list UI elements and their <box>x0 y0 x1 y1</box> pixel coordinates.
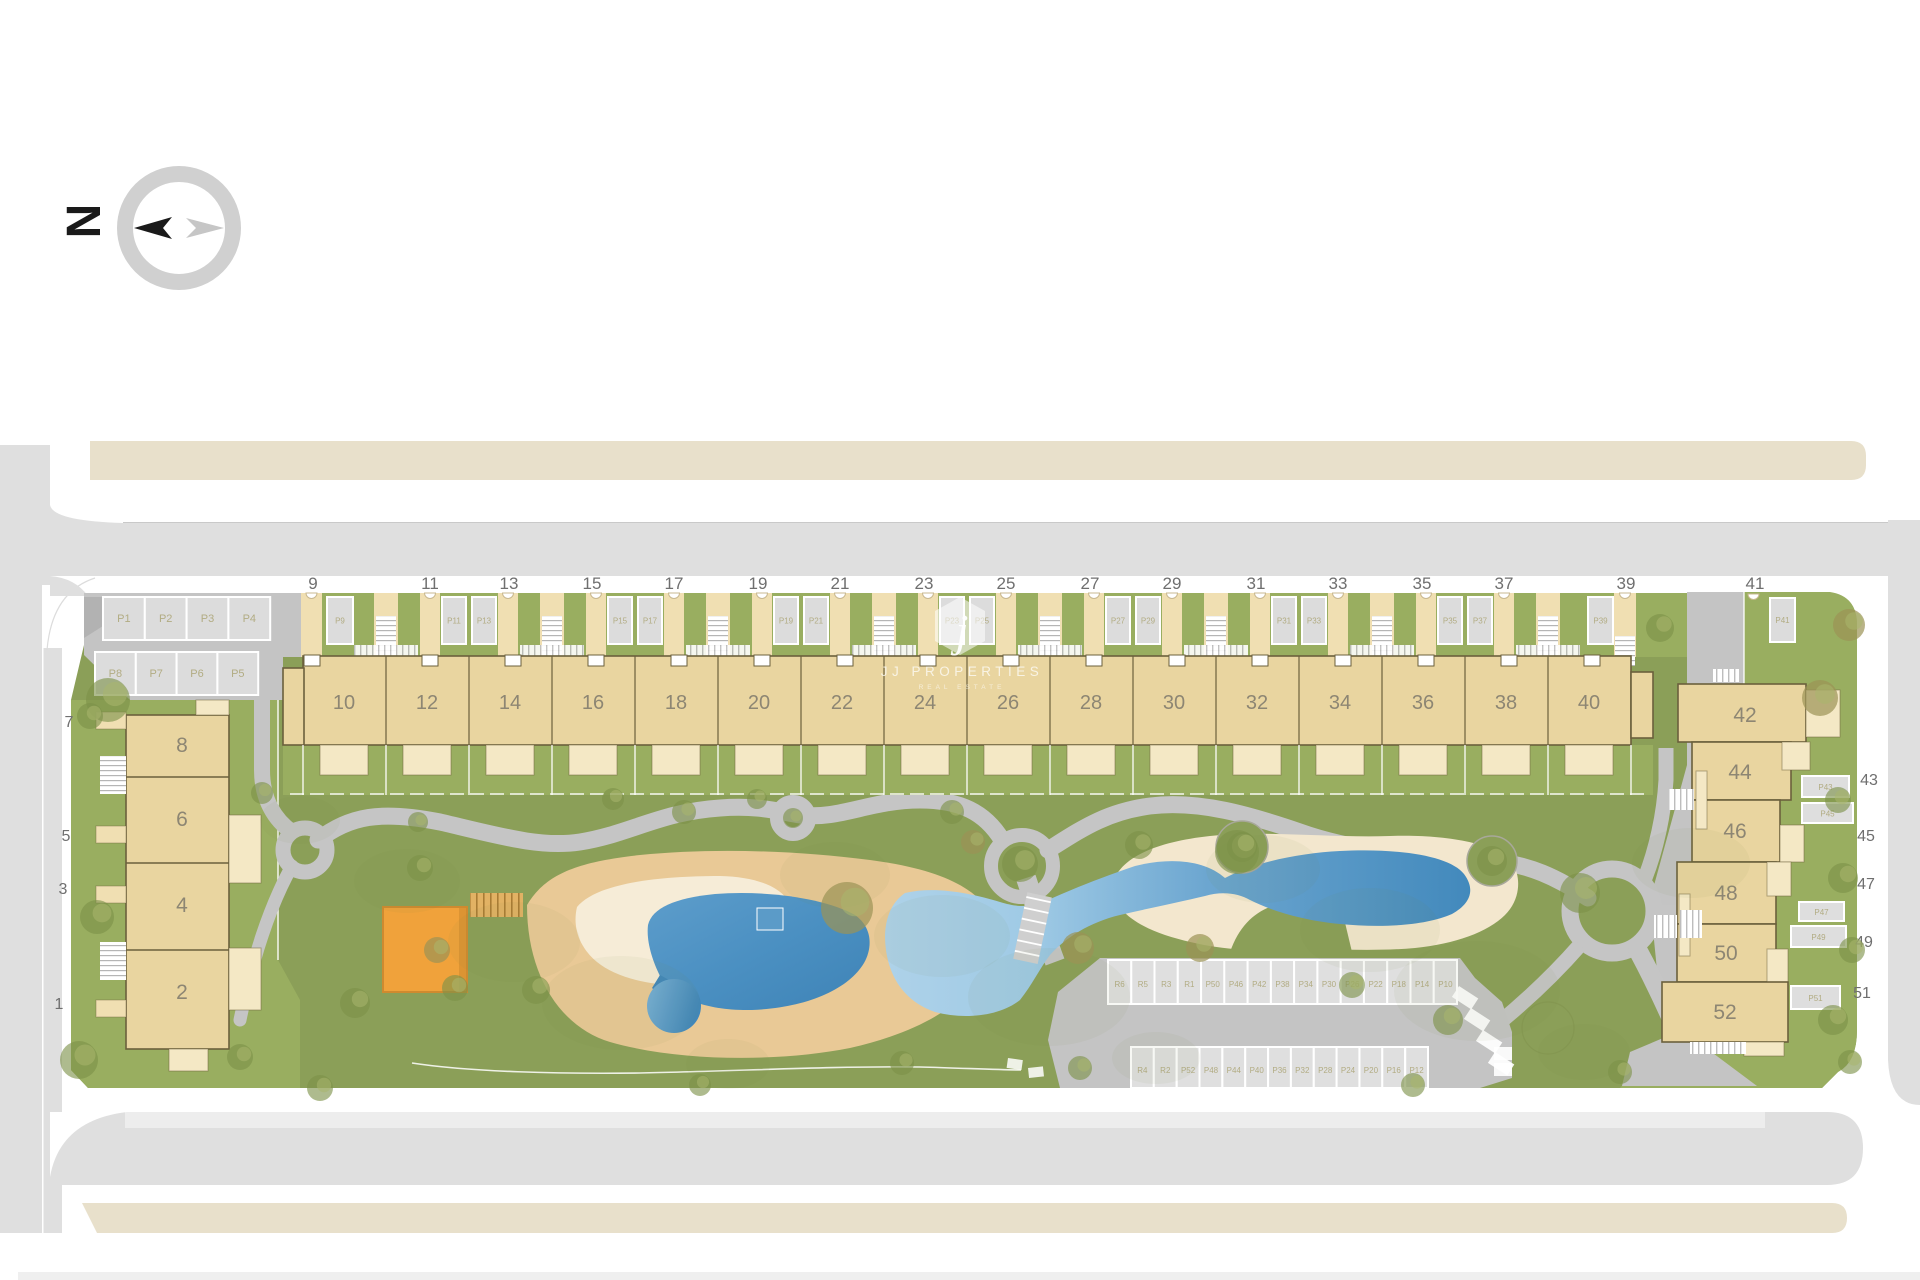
svg-text:N: N <box>58 204 111 239</box>
svg-text:P34: P34 <box>1299 980 1314 989</box>
svg-text:34: 34 <box>1329 692 1351 714</box>
svg-text:P51: P51 <box>1808 994 1823 1003</box>
svg-text:28: 28 <box>1080 692 1102 714</box>
svg-text:11: 11 <box>421 574 439 593</box>
svg-text:32: 32 <box>1246 692 1268 714</box>
svg-text:40: 40 <box>1578 692 1600 714</box>
svg-text:23: 23 <box>915 574 934 593</box>
svg-text:P31: P31 <box>1277 617 1292 626</box>
svg-text:12: 12 <box>416 692 438 714</box>
svg-text:31: 31 <box>1247 574 1266 593</box>
svg-text:P38: P38 <box>1275 980 1290 989</box>
svg-text:16: 16 <box>582 692 604 714</box>
svg-text:P7: P7 <box>149 668 162 680</box>
svg-text:R5: R5 <box>1138 980 1149 989</box>
svg-text:P20: P20 <box>1364 1066 1379 1075</box>
svg-text:43: 43 <box>1860 772 1878 789</box>
svg-text:P44: P44 <box>1227 1066 1242 1075</box>
svg-text:24: 24 <box>914 692 936 714</box>
svg-text:17: 17 <box>665 574 684 593</box>
svg-text:P49: P49 <box>1811 933 1826 942</box>
svg-text:P28: P28 <box>1318 1066 1333 1075</box>
svg-text:41: 41 <box>1746 574 1765 593</box>
svg-text:21: 21 <box>831 574 850 593</box>
svg-text:R3: R3 <box>1161 980 1172 989</box>
svg-text:47: 47 <box>1857 876 1875 893</box>
svg-text:13: 13 <box>500 574 519 593</box>
svg-text:P3: P3 <box>201 613 214 625</box>
svg-text:P4: P4 <box>243 613 256 625</box>
svg-text:P46: P46 <box>1229 980 1244 989</box>
svg-text:P47: P47 <box>1814 908 1829 917</box>
svg-text:P19: P19 <box>779 617 794 626</box>
svg-text:39: 39 <box>1617 574 1636 593</box>
svg-text:33: 33 <box>1329 574 1348 593</box>
svg-text:P41: P41 <box>1775 616 1790 625</box>
svg-text:50: 50 <box>1714 942 1737 965</box>
svg-text:P6: P6 <box>190 668 203 680</box>
svg-text:37: 37 <box>1495 574 1514 593</box>
svg-text:44: 44 <box>1728 761 1752 784</box>
svg-text:15: 15 <box>583 574 602 593</box>
svg-text:14: 14 <box>499 692 521 714</box>
svg-text:P29: P29 <box>1141 617 1156 626</box>
svg-text:P2: P2 <box>159 613 172 625</box>
svg-text:JJ PROPERTIES: JJ PROPERTIES <box>881 664 1044 679</box>
svg-text:3: 3 <box>59 881 68 898</box>
svg-text:P15: P15 <box>613 617 628 626</box>
svg-text:P32: P32 <box>1295 1066 1310 1075</box>
svg-text:29: 29 <box>1163 574 1182 593</box>
svg-text:1: 1 <box>55 996 64 1013</box>
svg-text:22: 22 <box>831 692 853 714</box>
svg-text:5: 5 <box>62 828 71 845</box>
svg-text:P37: P37 <box>1473 617 1488 626</box>
svg-text:35: 35 <box>1413 574 1432 593</box>
svg-text:51: 51 <box>1853 985 1871 1002</box>
svg-text:10: 10 <box>333 692 355 714</box>
svg-text:6: 6 <box>176 808 188 831</box>
svg-text:30: 30 <box>1163 692 1185 714</box>
svg-text:P36: P36 <box>1272 1066 1287 1075</box>
svg-text:P40: P40 <box>1250 1066 1265 1075</box>
svg-text:38: 38 <box>1495 692 1517 714</box>
svg-text:R1: R1 <box>1184 980 1195 989</box>
svg-text:20: 20 <box>748 692 770 714</box>
svg-text:P11: P11 <box>447 617 461 626</box>
svg-text:P16: P16 <box>1387 1066 1402 1075</box>
svg-text:2: 2 <box>176 981 188 1004</box>
svg-text:26: 26 <box>997 692 1019 714</box>
svg-text:P13: P13 <box>477 617 492 626</box>
svg-text:7: 7 <box>65 714 74 731</box>
svg-text:P33: P33 <box>1307 617 1322 626</box>
svg-text:52: 52 <box>1713 1001 1736 1024</box>
svg-text:P9: P9 <box>335 617 345 626</box>
svg-text:P39: P39 <box>1593 617 1608 626</box>
svg-text:42: 42 <box>1733 704 1756 727</box>
svg-text:P50: P50 <box>1206 980 1221 989</box>
svg-text:P21: P21 <box>809 617 824 626</box>
svg-text:P1: P1 <box>117 613 130 625</box>
svg-text:27: 27 <box>1081 574 1100 593</box>
svg-text:P48: P48 <box>1204 1066 1219 1075</box>
svg-text:19: 19 <box>749 574 768 593</box>
svg-text:45: 45 <box>1857 828 1875 845</box>
svg-text:P17: P17 <box>643 617 658 626</box>
svg-text:P24: P24 <box>1341 1066 1356 1075</box>
svg-text:P30: P30 <box>1322 980 1337 989</box>
svg-text:4: 4 <box>176 894 188 917</box>
svg-text:P42: P42 <box>1252 980 1267 989</box>
svg-text:25: 25 <box>997 574 1016 593</box>
svg-text:18: 18 <box>665 692 687 714</box>
svg-text:P27: P27 <box>1111 617 1126 626</box>
svg-text:P5: P5 <box>231 668 244 680</box>
svg-text:36: 36 <box>1412 692 1434 714</box>
svg-text:8: 8 <box>176 734 188 757</box>
svg-text:P22: P22 <box>1368 980 1383 989</box>
svg-text:9: 9 <box>308 574 317 593</box>
svg-text:P35: P35 <box>1443 617 1458 626</box>
svg-text:REAL ESTATE: REAL ESTATE <box>919 684 1006 691</box>
